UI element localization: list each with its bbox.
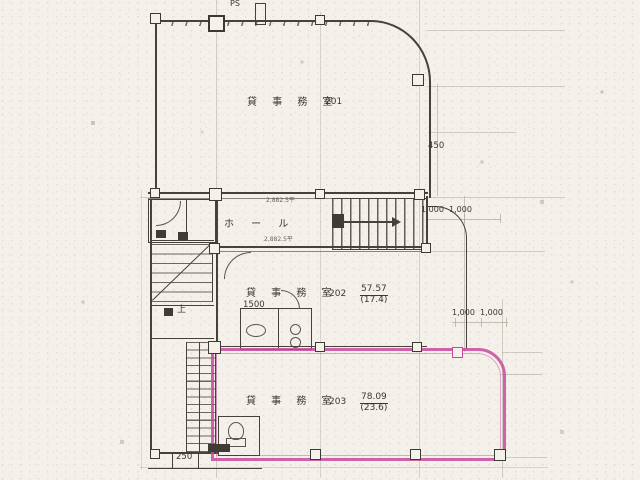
wall-line: [150, 338, 214, 339]
grid-line: [428, 132, 516, 133]
wall-line: [150, 240, 214, 241]
grid-line: [141, 190, 142, 470]
staircase-east: [332, 198, 426, 250]
column: [421, 243, 431, 253]
wall-hatch: [160, 21, 375, 26]
column: [452, 347, 463, 358]
column: [209, 188, 222, 201]
dim-450: 450: [428, 142, 444, 151]
dim-tick: [506, 318, 507, 327]
dim-1000-mid-right: 1,000: [480, 309, 503, 318]
dim-tick: [464, 214, 465, 223]
dim-tick: [172, 452, 173, 468]
room-202-right-wall: [427, 206, 467, 349]
wall-line: [216, 251, 218, 349]
column: [412, 74, 424, 86]
room-202-area-tsubo: (17.4): [360, 296, 387, 306]
column: [315, 15, 325, 25]
column: [150, 449, 160, 459]
column: [414, 189, 425, 200]
grid-line: [427, 86, 565, 87]
dim-1000-mid-left: 1,000: [452, 309, 475, 318]
grid-line: [502, 352, 542, 353]
toilet-fixture: [178, 232, 188, 240]
dim-tick: [500, 214, 501, 223]
room-203-area-tsubo: (23.6): [360, 404, 387, 414]
column: [494, 449, 506, 461]
up-label: 上: [177, 306, 186, 316]
small-label-box: [208, 444, 230, 452]
sink-fixture: [246, 324, 266, 337]
toilet-fixture: [156, 230, 166, 238]
room-203-area: 78.09 (23.6): [360, 393, 388, 414]
room-202-number: 202: [329, 290, 346, 300]
column: [208, 341, 221, 354]
column: [150, 13, 161, 24]
column: [209, 243, 220, 254]
dim-1000-top-left: 1,000: [421, 206, 444, 215]
column: [150, 188, 160, 198]
wall-line: [148, 192, 428, 194]
grid-line: [505, 457, 547, 458]
dim-1000-top-right: 1,000: [449, 206, 472, 215]
grid-line: [500, 374, 542, 375]
column: [315, 342, 325, 352]
wall-line: [150, 199, 152, 455]
dim-tick: [198, 452, 199, 468]
grid-line: [427, 197, 565, 198]
room-203-name: 貸 事 務 室: [246, 396, 338, 407]
stair-arrow-head: [392, 217, 401, 227]
grid-line: [427, 30, 565, 31]
pipe-shaft: [255, 3, 266, 25]
scan-noise: [0, 0, 2, 2]
room-202-name: 貸 事 務 室: [246, 288, 338, 299]
column: [310, 449, 321, 460]
column: [208, 15, 225, 32]
dim-tick: [481, 318, 482, 327]
hall-label: ホ ー ル: [224, 219, 295, 230]
stair-note-upper: 2,882.5平: [266, 198, 295, 205]
room-201-number: 201: [325, 98, 342, 108]
dim-1500: 1500: [243, 301, 265, 310]
column: [410, 449, 421, 460]
room-203-number: 203: [329, 398, 346, 408]
stair-rail: [199, 342, 200, 452]
room-202-area: 57.57 (17.4): [360, 285, 388, 306]
stair-arrow-line: [342, 221, 394, 223]
wall-line: [278, 308, 279, 348]
pipe-shaft-label: PS: [230, 0, 240, 9]
wall-line: [148, 468, 262, 469]
dim-250: 250: [176, 453, 192, 462]
room-201-outline: [155, 20, 431, 198]
stair-note-lower: 2,882.5平: [264, 237, 293, 244]
column: [315, 189, 325, 199]
wall-line: [216, 246, 427, 248]
landing-fixture: [164, 308, 173, 316]
floor-plan: PS 貸 事 務 室 201 450 1,000 1,000 ホ ー ル 2,8…: [0, 0, 640, 480]
door-arc: [224, 252, 251, 279]
column: [412, 342, 422, 352]
fixture-circle: [290, 324, 301, 335]
grid-line: [437, 84, 438, 196]
